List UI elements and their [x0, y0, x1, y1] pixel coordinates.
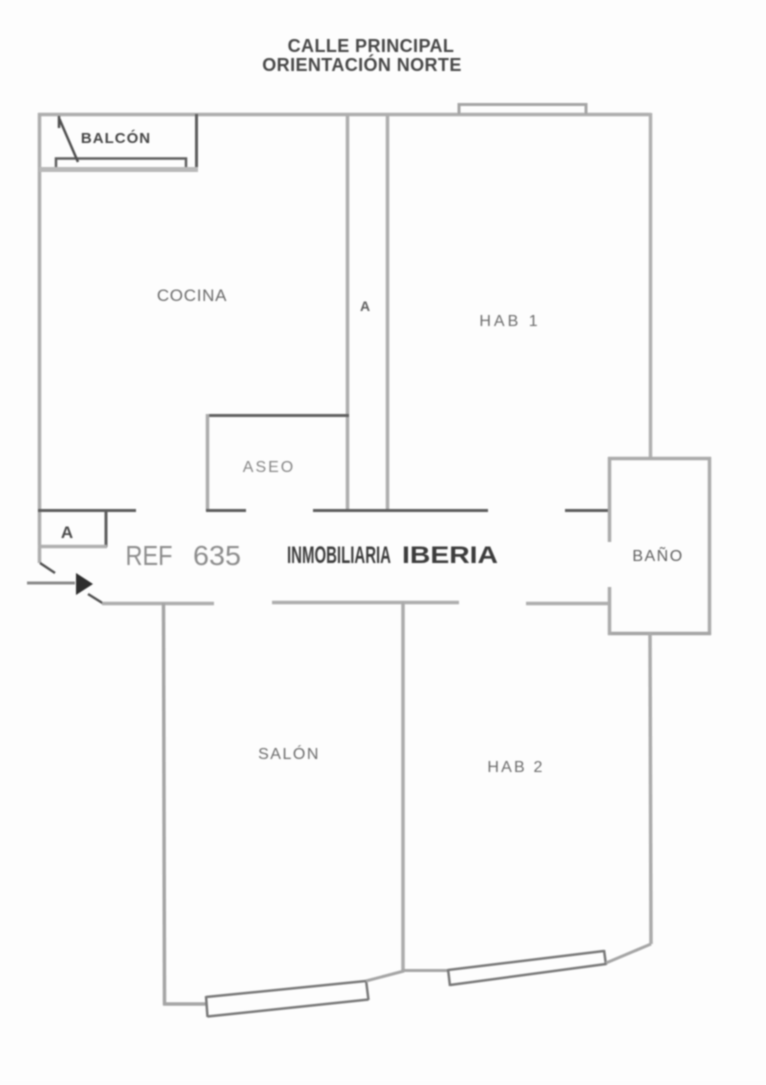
svg-text:SALÓN: SALÓN — [258, 744, 320, 763]
svg-text:HAB 2: HAB 2 — [487, 759, 544, 776]
svg-text:COCINA: COCINA — [157, 286, 227, 305]
svg-text:HAB 1: HAB 1 — [479, 313, 540, 330]
svg-text:A: A — [360, 298, 370, 314]
svg-text:REF: REF — [126, 540, 173, 571]
svg-text:INMOBILIARIA: INMOBILIARIA — [287, 542, 391, 569]
svg-text:ORIENTACIÓN NORTE: ORIENTACIÓN NORTE — [262, 54, 461, 75]
svg-text:IBERIA: IBERIA — [402, 542, 498, 569]
svg-text:A: A — [61, 523, 73, 542]
svg-text:635: 635 — [193, 540, 241, 571]
svg-text:BALCÓN: BALCÓN — [81, 129, 151, 147]
svg-text:BAÑO: BAÑO — [632, 545, 683, 565]
svg-text:ASEO: ASEO — [243, 459, 295, 476]
svg-text:CALLE PRINCIPAL: CALLE PRINCIPAL — [288, 36, 455, 56]
